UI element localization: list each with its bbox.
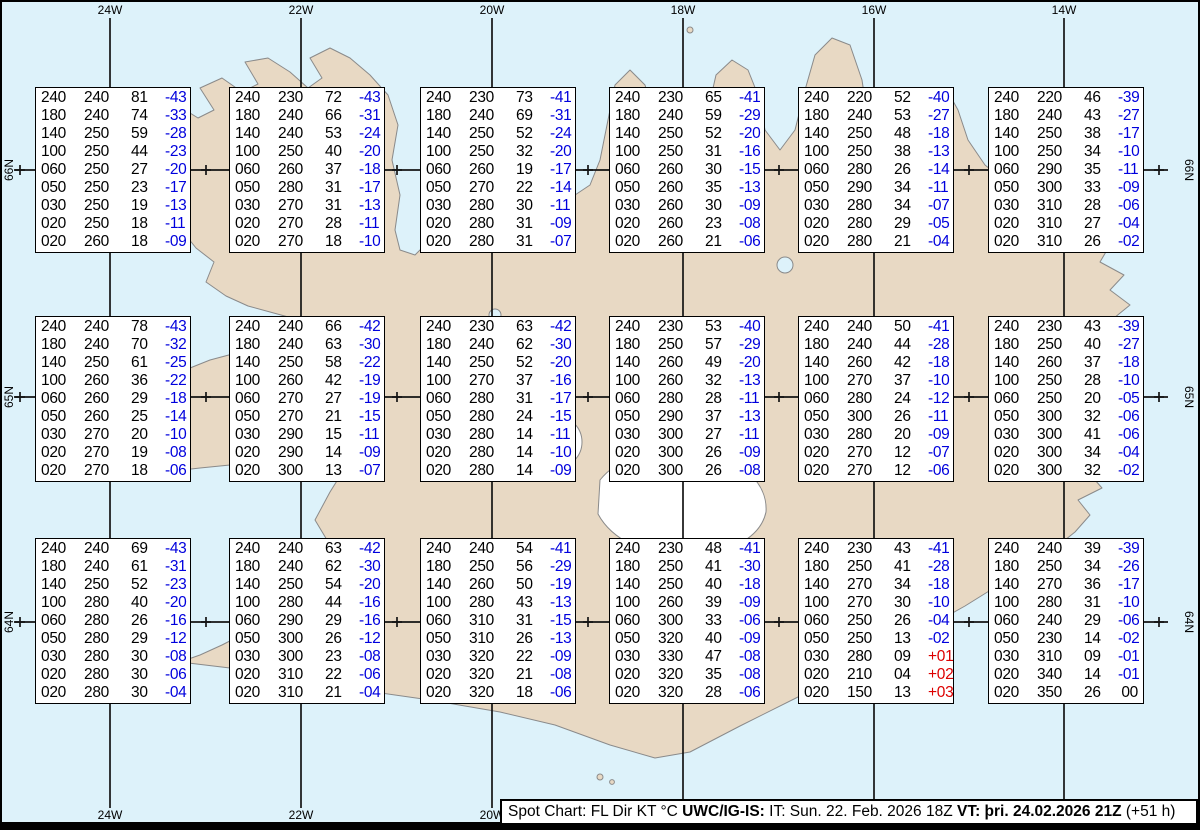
spot-row: 03028030-08 xyxy=(41,648,185,666)
temp-value: -16 xyxy=(359,612,381,630)
temp-value: -06 xyxy=(928,462,950,480)
dir-value: 240 xyxy=(278,558,325,576)
kt-value: 47 xyxy=(705,648,739,666)
spot-row: 02021004+02 xyxy=(804,666,948,684)
temp-value: -24 xyxy=(359,125,381,143)
dir-value: 290 xyxy=(278,426,325,444)
temp-value: -41 xyxy=(550,540,572,558)
spot-box: 24024078-4318024070-3214025061-251002603… xyxy=(35,316,191,482)
dir-value: 280 xyxy=(469,462,516,480)
fl-value: 020 xyxy=(994,462,1037,480)
spot-row: 02031022-06 xyxy=(235,666,379,684)
spot-row: 10025038-13 xyxy=(804,143,948,161)
dir-value: 250 xyxy=(847,125,894,143)
spot-row: 03028030-11 xyxy=(426,197,570,215)
fl-value: 030 xyxy=(615,197,658,215)
dir-value: 250 xyxy=(1037,390,1084,408)
fl-value: 030 xyxy=(994,426,1037,444)
fl-value: 020 xyxy=(41,462,84,480)
temp-value: -13 xyxy=(928,143,950,161)
fl-value: 020 xyxy=(426,215,469,233)
spot-row: 24024054-41 xyxy=(426,540,570,558)
kt-value: 28 xyxy=(705,390,739,408)
dir-value: 250 xyxy=(1037,336,1084,354)
dir-value: 270 xyxy=(278,390,325,408)
temp-value: -02 xyxy=(1118,233,1140,251)
temp-value: -10 xyxy=(1118,372,1140,390)
kt-value: 53 xyxy=(325,125,359,143)
kt-value: 78 xyxy=(131,318,165,336)
dir-value: 230 xyxy=(658,540,705,558)
temp-value: -14 xyxy=(165,408,187,426)
fl-value: 020 xyxy=(235,215,278,233)
dir-value: 290 xyxy=(278,444,325,462)
fl-value: 060 xyxy=(994,612,1037,630)
fl-value: 140 xyxy=(804,125,847,143)
spot-row: 05031026-13 xyxy=(426,630,570,648)
spot-row: 02032018-06 xyxy=(426,684,570,702)
kt-value: 19 xyxy=(131,444,165,462)
fl-value: 020 xyxy=(41,684,84,702)
fl-value: 020 xyxy=(804,444,847,462)
spot-row: 03026030-09 xyxy=(615,197,759,215)
temp-value: -09 xyxy=(1118,179,1140,197)
fl-value: 100 xyxy=(41,594,84,612)
spot-row: 03031028-06 xyxy=(994,197,1138,215)
spot-box: 24024050-4118024044-2814026042-181002703… xyxy=(798,316,954,482)
fl-value: 030 xyxy=(804,426,847,444)
kt-value: 14 xyxy=(1084,630,1118,648)
temp-value: -09 xyxy=(739,594,761,612)
temp-value: -11 xyxy=(165,215,185,233)
temp-value: -43 xyxy=(359,89,381,107)
kt-value: 56 xyxy=(516,558,550,576)
temp-value: -16 xyxy=(359,594,381,612)
kt-value: 40 xyxy=(1084,336,1118,354)
spot-row: 05026035-13 xyxy=(615,179,759,197)
dir-value: 230 xyxy=(278,89,325,107)
fl-value: 140 xyxy=(41,576,84,594)
kt-value: 63 xyxy=(325,540,359,558)
temp-value: -16 xyxy=(165,612,187,630)
spot-row: 24024078-43 xyxy=(41,318,185,336)
dir-value: 250 xyxy=(658,143,705,161)
temp-value: -01 xyxy=(1118,648,1140,666)
legend-issuer: UWC/IG-IS: xyxy=(682,803,765,821)
fl-value: 180 xyxy=(615,558,658,576)
kt-value: 35 xyxy=(1084,161,1118,179)
temp-value: -10 xyxy=(359,233,381,251)
kt-value: 14 xyxy=(516,462,550,480)
fl-value: 020 xyxy=(235,444,278,462)
spot-row: 18024066-31 xyxy=(235,107,379,125)
fl-value: 020 xyxy=(804,462,847,480)
kt-value: 37 xyxy=(705,408,739,426)
spot-row: 24024039-39 xyxy=(994,540,1138,558)
kt-value: 31 xyxy=(325,179,359,197)
spot-row: 14026050-19 xyxy=(426,576,570,594)
spot-row: 03027031-13 xyxy=(235,197,379,215)
spot-row: 06025026-04 xyxy=(804,612,948,630)
kt-value: 23 xyxy=(131,179,165,197)
temp-value: -23 xyxy=(165,143,187,161)
spot-row: 14025048-18 xyxy=(804,125,948,143)
fl-value: 050 xyxy=(615,179,658,197)
spot-row: 14025052-20 xyxy=(426,354,570,372)
fl-value: 180 xyxy=(41,558,84,576)
kt-value: 72 xyxy=(325,89,359,107)
fl-value: 240 xyxy=(994,318,1037,336)
fl-value: 020 xyxy=(615,462,658,480)
dir-value: 250 xyxy=(1037,372,1084,390)
dir-value: 240 xyxy=(658,107,705,125)
fl-value: 030 xyxy=(235,648,278,666)
kt-value: 31 xyxy=(516,233,550,251)
fl-value: 060 xyxy=(804,390,847,408)
temp-value: -20 xyxy=(550,143,572,161)
spot-row: 24024069-43 xyxy=(41,540,185,558)
spot-row: 14027034-18 xyxy=(804,576,948,594)
temp-value: -22 xyxy=(359,354,381,372)
spot-row: 18024053-27 xyxy=(804,107,948,125)
fl-value: 020 xyxy=(615,233,658,251)
temp-value: -12 xyxy=(359,630,381,648)
temp-value: -20 xyxy=(165,161,187,179)
spot-row: 05029034-11 xyxy=(804,179,948,197)
dir-value: 350 xyxy=(1037,684,1084,702)
spot-row: 10028031-10 xyxy=(994,594,1138,612)
kt-value: 32 xyxy=(516,143,550,161)
dir-value: 270 xyxy=(84,444,131,462)
temp-value: -13 xyxy=(550,630,572,648)
fl-value: 180 xyxy=(615,107,658,125)
dir-value: 280 xyxy=(84,630,131,648)
temp-value: +02 xyxy=(928,666,953,684)
spot-row: 05029037-13 xyxy=(615,408,759,426)
spot-row: 06025020-05 xyxy=(994,390,1138,408)
dir-value: 280 xyxy=(469,594,516,612)
dir-value: 270 xyxy=(278,408,325,426)
spot-row: 24023072-43 xyxy=(235,89,379,107)
dir-value: 270 xyxy=(847,594,894,612)
kt-value: 31 xyxy=(516,215,550,233)
spot-row: 02030026-08 xyxy=(615,462,759,480)
temp-value: -11 xyxy=(359,215,379,233)
kt-value: 33 xyxy=(705,612,739,630)
kt-value: 26 xyxy=(1084,684,1118,702)
fl-value: 240 xyxy=(615,89,658,107)
spot-row: 06026037-18 xyxy=(235,161,379,179)
temp-value: -08 xyxy=(550,666,572,684)
dir-value: 280 xyxy=(469,426,516,444)
temp-value: -20 xyxy=(550,354,572,372)
temp-value: -42 xyxy=(359,318,381,336)
temp-value: -07 xyxy=(928,444,950,462)
kt-value: 43 xyxy=(1084,107,1118,125)
spot-row: 18025041-30 xyxy=(615,558,759,576)
temp-value: -09 xyxy=(165,233,187,251)
fl-value: 100 xyxy=(804,372,847,390)
fl-value: 180 xyxy=(426,558,469,576)
dir-value: 270 xyxy=(469,372,516,390)
spot-row: 02028014-10 xyxy=(426,444,570,462)
spot-row: 14025040-18 xyxy=(615,576,759,594)
dir-value: 290 xyxy=(278,612,325,630)
fl-value: 020 xyxy=(235,666,278,684)
fl-value: 050 xyxy=(235,408,278,426)
temp-value: -31 xyxy=(165,558,187,576)
fl-value: 060 xyxy=(804,161,847,179)
kt-value: 59 xyxy=(705,107,739,125)
spot-row: 02028030-06 xyxy=(41,666,185,684)
spot-row: 05025013-02 xyxy=(804,630,948,648)
spot-row: 24024081-43 xyxy=(41,89,185,107)
spot-box: 24023065-4118024059-2914025052-201002503… xyxy=(609,87,765,253)
fl-value: 050 xyxy=(615,408,658,426)
fl-value: 050 xyxy=(41,408,84,426)
fl-value: 100 xyxy=(615,372,658,390)
dir-value: 240 xyxy=(847,107,894,125)
spot-box: 24022046-3918024043-2714025038-171002503… xyxy=(988,87,1144,253)
temp-value: -28 xyxy=(165,125,187,143)
fl-value: 020 xyxy=(615,684,658,702)
dir-value: 260 xyxy=(658,215,705,233)
dir-value: 280 xyxy=(469,197,516,215)
fl-value: 020 xyxy=(804,233,847,251)
temp-value: -10 xyxy=(1118,594,1140,612)
spot-row: 03025019-13 xyxy=(41,197,185,215)
kt-value: 21 xyxy=(894,233,928,251)
dir-value: 260 xyxy=(84,233,131,251)
dir-value: 260 xyxy=(84,372,131,390)
fl-value: 100 xyxy=(235,594,278,612)
temp-value: -39 xyxy=(1118,89,1140,107)
kt-value: 53 xyxy=(894,107,928,125)
spot-row: 02028031-07 xyxy=(426,233,570,251)
dir-value: 240 xyxy=(847,318,894,336)
spot-row: 06028026-14 xyxy=(804,161,948,179)
spot-row: 14025052-24 xyxy=(426,125,570,143)
temp-value: -09 xyxy=(550,648,572,666)
kt-value: 53 xyxy=(705,318,739,336)
kt-value: 66 xyxy=(325,107,359,125)
fl-value: 020 xyxy=(804,215,847,233)
temp-value: -18 xyxy=(928,354,950,372)
spot-row: 02026021-06 xyxy=(615,233,759,251)
kt-value: 38 xyxy=(894,143,928,161)
temp-value: -09 xyxy=(359,444,381,462)
spot-row: 02032035-08 xyxy=(615,666,759,684)
fl-value: 020 xyxy=(994,215,1037,233)
dir-value: 260 xyxy=(658,594,705,612)
kt-value: 65 xyxy=(705,89,739,107)
fl-value: 020 xyxy=(426,233,469,251)
dir-value: 260 xyxy=(84,408,131,426)
spot-row: 10025040-20 xyxy=(235,143,379,161)
dir-value: 250 xyxy=(278,143,325,161)
fl-value: 030 xyxy=(994,197,1037,215)
kt-value: 29 xyxy=(1084,612,1118,630)
dir-value: 260 xyxy=(469,161,516,179)
fl-value: 060 xyxy=(235,612,278,630)
kt-value: 40 xyxy=(705,576,739,594)
temp-value: -15 xyxy=(550,612,572,630)
kt-value: 52 xyxy=(516,125,550,143)
fl-value: 240 xyxy=(994,540,1037,558)
temp-value: -06 xyxy=(359,666,381,684)
legend-bar: Spot Chart: FL Dir KT °C UWC/IG-IS: IT: … xyxy=(500,799,1198,825)
spot-row: 02028030-04 xyxy=(41,684,185,702)
spot-box: 24023063-4218024062-3014025052-201002703… xyxy=(420,316,576,482)
spot-row: 02027028-11 xyxy=(235,215,379,233)
fl-value: 140 xyxy=(994,576,1037,594)
kt-value: 63 xyxy=(325,336,359,354)
temp-value: -04 xyxy=(359,684,381,702)
temp-value: -08 xyxy=(739,462,761,480)
kt-value: 14 xyxy=(325,444,359,462)
fl-value: 140 xyxy=(426,354,469,372)
dir-value: 240 xyxy=(84,336,131,354)
legend-valid-time: VT: þri. 24.02.2026 21Z xyxy=(957,803,1122,821)
fl-value: 240 xyxy=(804,89,847,107)
dir-value: 320 xyxy=(658,684,705,702)
kt-value: 21 xyxy=(705,233,739,251)
fl-value: 020 xyxy=(615,215,658,233)
kt-value: 31 xyxy=(516,612,550,630)
temp-value: 00 xyxy=(1118,684,1138,702)
dir-value: 270 xyxy=(847,576,894,594)
kt-value: 27 xyxy=(1084,215,1118,233)
fl-value: 060 xyxy=(41,612,84,630)
spot-row: 03028020-09 xyxy=(804,426,948,444)
kt-value: 52 xyxy=(894,89,928,107)
dir-value: 260 xyxy=(658,197,705,215)
spot-row: 02027018-10 xyxy=(235,233,379,251)
fl-value: 060 xyxy=(41,390,84,408)
spot-row: 14025054-20 xyxy=(235,576,379,594)
spot-row: 03027020-10 xyxy=(41,426,185,444)
dir-value: 280 xyxy=(1037,594,1084,612)
temp-value: -28 xyxy=(928,558,950,576)
dir-value: 270 xyxy=(469,179,516,197)
kt-value: 30 xyxy=(894,594,928,612)
temp-value: -24 xyxy=(550,125,572,143)
temp-value: -10 xyxy=(1118,143,1140,161)
kt-value: 30 xyxy=(131,684,165,702)
temp-value: -33 xyxy=(165,107,187,125)
fl-value: 240 xyxy=(235,318,278,336)
spot-box: 24024081-4318024074-3314025059-281002504… xyxy=(35,87,191,253)
kt-value: 14 xyxy=(516,444,550,462)
kt-value: 52 xyxy=(705,125,739,143)
dir-value: 300 xyxy=(278,648,325,666)
kt-value: 28 xyxy=(705,684,739,702)
dir-value: 300 xyxy=(658,444,705,462)
kt-value: 37 xyxy=(325,161,359,179)
temp-value: -39 xyxy=(1118,540,1140,558)
fl-value: 240 xyxy=(235,540,278,558)
dir-value: 320 xyxy=(469,666,516,684)
spot-row: 06028024-12 xyxy=(804,390,948,408)
spot-row: 02030013-07 xyxy=(235,462,379,480)
fl-value: 030 xyxy=(804,197,847,215)
spot-row: 02031027-04 xyxy=(994,215,1138,233)
dir-value: 320 xyxy=(469,648,516,666)
temp-value: -13 xyxy=(550,594,572,612)
fl-value: 050 xyxy=(41,179,84,197)
fl-value: 020 xyxy=(994,444,1037,462)
kt-value: 61 xyxy=(131,558,165,576)
temp-value: -17 xyxy=(550,390,572,408)
fl-value: 140 xyxy=(994,125,1037,143)
fl-value: 030 xyxy=(41,426,84,444)
fl-value: 050 xyxy=(994,179,1037,197)
temp-value: -11 xyxy=(928,408,948,426)
kt-value: 26 xyxy=(894,408,928,426)
temp-value: -06 xyxy=(165,666,187,684)
kt-value: 33 xyxy=(1084,179,1118,197)
kt-value: 18 xyxy=(325,233,359,251)
dir-value: 250 xyxy=(84,143,131,161)
kt-value: 22 xyxy=(516,648,550,666)
spot-row: 03031009-01 xyxy=(994,648,1138,666)
temp-value: -02 xyxy=(1118,462,1140,480)
kt-value: 36 xyxy=(131,372,165,390)
temp-value: -17 xyxy=(359,179,381,197)
dir-value: 300 xyxy=(658,612,705,630)
fl-value: 030 xyxy=(994,648,1037,666)
fl-value: 060 xyxy=(235,161,278,179)
spot-row: 10028040-20 xyxy=(41,594,185,612)
kt-value: 22 xyxy=(516,179,550,197)
spot-row: 10028043-13 xyxy=(426,594,570,612)
temp-value: -31 xyxy=(550,107,572,125)
dir-value: 240 xyxy=(84,89,131,107)
spot-row: 14025052-20 xyxy=(615,125,759,143)
fl-value: 140 xyxy=(235,125,278,143)
dir-value: 260 xyxy=(658,161,705,179)
spot-row: 06025027-20 xyxy=(41,161,185,179)
kt-value: 39 xyxy=(705,594,739,612)
spot-row: 03029015-11 xyxy=(235,426,379,444)
spot-box: 24023072-4318024066-3114024053-241002504… xyxy=(229,87,385,253)
temp-value: -06 xyxy=(1118,426,1140,444)
spot-row: 18024062-30 xyxy=(235,558,379,576)
kt-value: 13 xyxy=(894,684,928,702)
kt-value: 27 xyxy=(705,426,739,444)
kt-value: 59 xyxy=(131,125,165,143)
spot-row: 18024043-27 xyxy=(994,107,1138,125)
dir-value: 290 xyxy=(658,408,705,426)
temp-value: -39 xyxy=(1118,318,1140,336)
fl-value: 100 xyxy=(235,372,278,390)
spot-row: 02026023-08 xyxy=(615,215,759,233)
kt-value: 12 xyxy=(894,462,928,480)
spot-row: 06031031-15 xyxy=(426,612,570,630)
kt-value: 31 xyxy=(1084,594,1118,612)
temp-value: -09 xyxy=(550,462,572,480)
spot-row: 14025059-28 xyxy=(41,125,185,143)
spot-row: 03028014-11 xyxy=(426,426,570,444)
dir-value: 240 xyxy=(469,107,516,125)
temp-value: -19 xyxy=(359,372,381,390)
dir-value: 250 xyxy=(84,576,131,594)
spot-chart-page: { "map": { "meridian_labels_top": ["24W"… xyxy=(0,0,1200,830)
fl-value: 240 xyxy=(41,540,84,558)
dir-value: 310 xyxy=(469,630,516,648)
temp-value: -11 xyxy=(1118,161,1138,179)
spot-row: 10025044-23 xyxy=(41,143,185,161)
